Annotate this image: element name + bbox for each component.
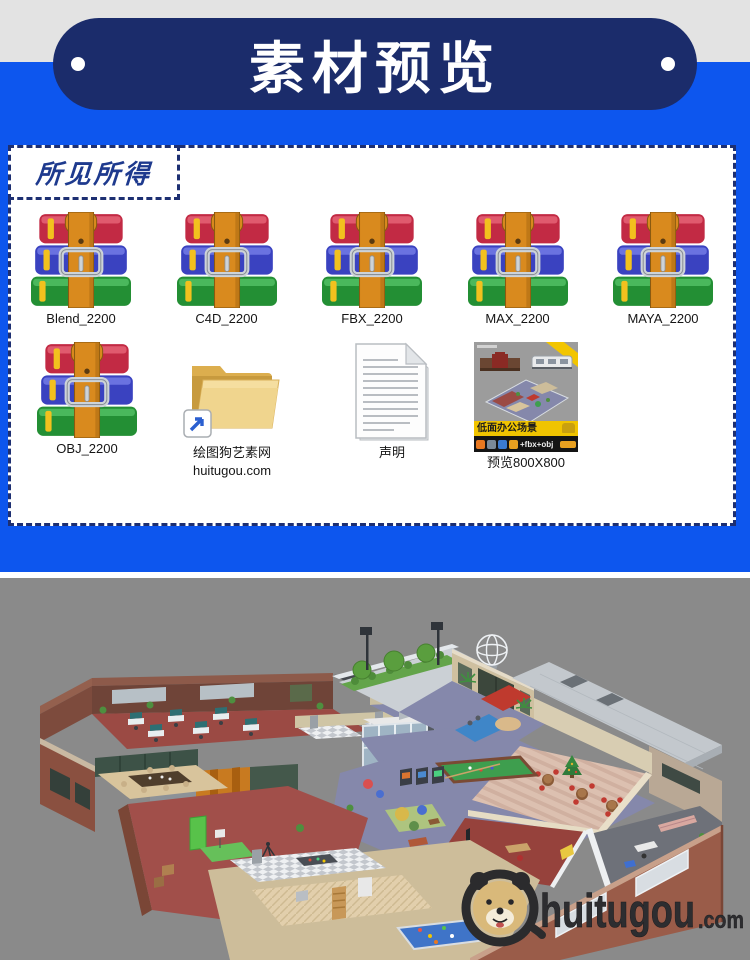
folder-label-line2: huitugou.com: [193, 463, 271, 478]
thumb-site-logo: [560, 441, 576, 448]
file-item-max[interactable]: MAX_2200: [468, 212, 568, 326]
format-text: +fbx+obj: [520, 440, 553, 449]
file-item-preview-image[interactable]: 低面办公场景 +fbx+obj 预览800X800: [465, 342, 587, 470]
file-label: 预览800X800: [487, 455, 565, 470]
blender-icon: [476, 440, 485, 449]
second-file-row: OBJ_2200 绘图狗艺素网 huitugou.com 声明: [11, 326, 733, 478]
file-label: FBX_2200: [341, 311, 402, 326]
file-item-fbx[interactable]: FBX_2200: [322, 212, 422, 326]
office-3d-render: huitugou .com: [0, 578, 750, 960]
file-label: MAYA_2200: [627, 311, 698, 326]
file-label: MAX_2200: [485, 311, 549, 326]
rar-archive-icon: [468, 212, 568, 308]
thumb-banner: 低面办公场景: [474, 421, 578, 436]
rar-archive-icon: [37, 342, 137, 438]
thumb-dog-logo: [562, 423, 575, 433]
file-item-c4d[interactable]: C4D_2200: [177, 212, 277, 326]
page-title: 素材预览: [249, 24, 501, 105]
folder-shortcut-icon: [182, 342, 282, 442]
max-icon: [498, 440, 507, 449]
rar-archive-icon: [322, 212, 422, 308]
maya-icon: [509, 440, 518, 449]
thumb-corner-text: [477, 345, 497, 348]
render-preview-section: huitugou .com: [0, 578, 750, 960]
file-preview-panel: 所见所得 Blend_2200 C4D_2200 FBX_2200 MAX_22…: [8, 145, 736, 526]
folder-label-line1: 绘图狗艺素网: [193, 445, 271, 460]
file-label: Blend_2200: [46, 311, 115, 326]
file-label: OBJ_2200: [56, 441, 117, 456]
wysiwyg-tag: 所见所得: [8, 145, 180, 200]
thumb-floorplan: [478, 374, 574, 422]
watermark-tld: .com: [698, 907, 744, 934]
thumb-furniture-strip: [478, 350, 574, 374]
rar-archive-icon: [613, 212, 713, 308]
wysiwyg-label: 所见所得: [35, 154, 154, 191]
title-banner: 素材预览: [53, 18, 697, 110]
text-document-icon: [349, 342, 435, 442]
file-item-blend[interactable]: Blend_2200: [31, 212, 131, 326]
rar-archive-icon: [177, 212, 277, 308]
c4d-icon: [487, 440, 496, 449]
preview-thumbnail: 低面办公场景 +fbx+obj: [474, 342, 578, 452]
folder-shortcut-huitugou[interactable]: 绘图狗艺素网 huitugou.com: [165, 342, 299, 478]
arcade-machines: [400, 766, 444, 786]
watermark-text: huitugou: [540, 884, 695, 937]
file-item-statement[interactable]: 声明: [333, 342, 451, 460]
rar-archive-icon: [31, 212, 131, 308]
file-label: C4D_2200: [195, 311, 257, 326]
file-item-maya[interactable]: MAYA_2200: [613, 212, 713, 326]
bullet-dot-right: [661, 57, 675, 71]
file-label: 声明: [379, 445, 405, 460]
blue-background-section: 所见所得 Blend_2200 C4D_2200 FBX_2200 MAX_22…: [0, 62, 750, 572]
thumb-format-strip: +fbx+obj: [474, 436, 578, 452]
file-item-obj[interactable]: OBJ_2200: [31, 342, 143, 456]
bullet-dot-left: [71, 57, 85, 71]
